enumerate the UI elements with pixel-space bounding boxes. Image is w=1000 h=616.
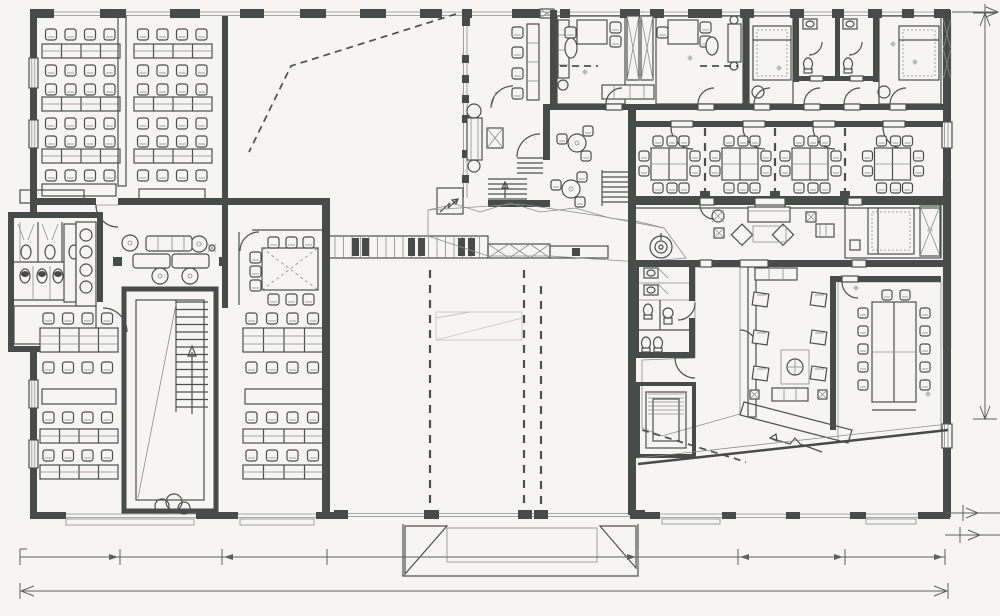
cafe-stair [602,170,630,206]
se-conference [830,276,941,430]
ne-shaft [627,16,653,80]
floor-plan-drawing: Hand-sketched architectural floor plan o… [0,0,1000,616]
center-meeting-room [239,230,322,305]
ne-bedroom-2 [878,26,939,98]
se-lounge-1 [712,207,834,245]
se-lounge-2 [740,268,827,401]
entry-core [467,10,557,207]
se-bedroom [850,206,940,256]
speckled-walkway [428,203,686,262]
classroom-nw-b [134,29,212,181]
east-meeting-rooms [628,108,943,208]
scanned-floor-plan-page: Hand-sketched architectural floor plan o… [0,0,1000,616]
classroom-nw-a [42,29,120,181]
corridor-lounge [113,235,228,284]
spiral-feature [650,233,672,258]
sw-stairwell [124,289,216,514]
ne-bedroom-1 [752,26,791,98]
open-hall-nw [226,14,470,214]
cafe-corner [551,126,593,207]
locker-wall [327,236,608,258]
south-center-entrance [403,524,638,576]
ne-office-2 [657,16,741,70]
classroom-sw-b [243,313,325,479]
classroom-sw-a [40,313,118,479]
corner-dimension-marks [945,4,1000,543]
se-elevator-core [638,384,694,456]
